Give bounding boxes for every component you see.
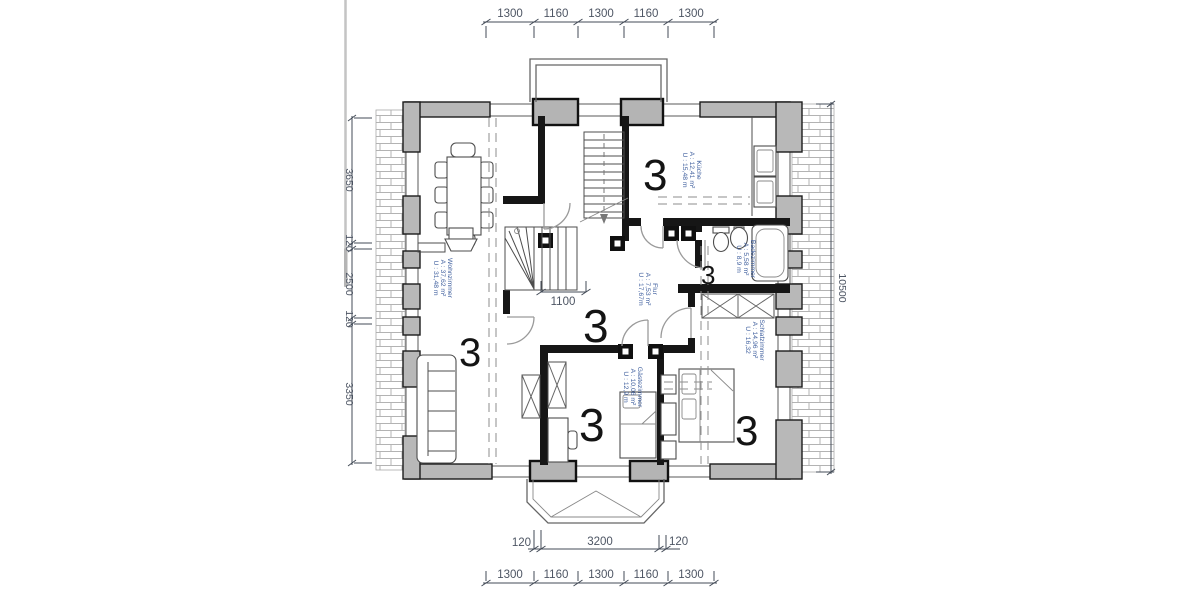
- dim-label: 1160: [544, 569, 569, 581]
- wardrobe-wohnzimmer: [522, 375, 540, 418]
- balcony-outline: [530, 59, 667, 102]
- room-perimeter: U : 17,67m: [637, 272, 644, 306]
- column: [538, 233, 553, 248]
- column: [618, 344, 633, 359]
- room-area: A : 5,58 m²: [742, 243, 749, 277]
- room-name: Wohnzimmer: [446, 258, 453, 299]
- dim-label: 1300: [588, 8, 614, 20]
- wardrobe-schlafzimmer: [702, 294, 774, 318]
- dim-label: 120: [512, 537, 531, 549]
- room-area: A : 10,06 m²: [629, 369, 636, 406]
- dim-label: 1300: [678, 569, 704, 581]
- room-area: A : 12,41 m²: [688, 152, 695, 189]
- dimension-top: 1300 1160 1300 1160 1300: [482, 8, 719, 38]
- room-label-gaestezimmer: Gästezimmer A : 10,06 m² U : 12,9 m: [622, 367, 643, 408]
- room-marker: 3: [643, 151, 667, 200]
- room-marker: 3: [735, 407, 758, 454]
- room-name: Schlafzimmer: [758, 319, 765, 361]
- dimension-bottom-upper: 120 3200 120: [512, 530, 688, 552]
- room-name: Badezimmer: [749, 240, 756, 279]
- sofa: [417, 355, 456, 463]
- bay-window: [527, 479, 664, 523]
- room-label-flur: Flur A : 7,53 m² U : 17,67m: [637, 272, 658, 306]
- dim-label: 1160: [634, 569, 659, 581]
- column: [664, 226, 679, 241]
- dim-label: 10500: [836, 273, 848, 302]
- column: [610, 236, 625, 251]
- room-name: Gästezimmer: [636, 367, 643, 408]
- dim-label: 120: [343, 234, 355, 252]
- dim-label: 1100: [551, 296, 576, 308]
- kitchen-counter: [752, 117, 776, 216]
- door-wohnzimmer: [507, 317, 534, 344]
- room-label-kueche: Küche A : 12,41 m² U : 15,48 m: [681, 152, 702, 189]
- dim-label: 3200: [587, 536, 613, 548]
- dim-label: 1160: [544, 8, 569, 20]
- dim-label: 120: [669, 536, 688, 548]
- dim-label: 1300: [497, 569, 523, 581]
- door-kitchen: [641, 226, 663, 248]
- room-label-schlafzimmer: Schlafzimmer A : 14,96 m² U : 16,32: [744, 319, 765, 361]
- column: [648, 344, 663, 359]
- room-marker: 3: [579, 399, 605, 451]
- desk: [548, 418, 577, 462]
- room-perimeter: U : 31,48 m: [432, 260, 439, 295]
- room-name: Küche: [695, 160, 702, 179]
- floorplan-canvas: 1300 1160 1300 1160 1300 120 3200 120 13…: [0, 0, 1200, 600]
- dim-label: 3350: [343, 382, 355, 406]
- floorplan-drawing: 1300 1160 1300 1160 1300 120 3200 120 13…: [0, 0, 1200, 600]
- room-area: A : 37,62 m²: [439, 260, 446, 297]
- room-marker: 3: [701, 260, 715, 290]
- door-gaestezimmer: [622, 320, 648, 346]
- room-perimeter: U : 8,9 m: [735, 245, 742, 273]
- room-area: A : 7,53 m²: [644, 273, 651, 307]
- room-perimeter: U : 16,32: [744, 326, 751, 354]
- bathtub: [752, 225, 788, 281]
- dim-label: 1160: [634, 8, 659, 20]
- dim-label: 120: [343, 310, 355, 328]
- dimension-bottom-lower: 1300 1160 1300 1160 1300: [482, 569, 719, 586]
- dimension-left: 3650 120 2500 120 3350: [343, 115, 372, 466]
- wardrobe-gaestezimmer: [548, 362, 566, 408]
- room-label-badezimmer: Badezimmer A : 5,58 m² U : 8,9 m: [735, 240, 756, 279]
- room-label-wohnzimmer: Wohnzimmer A : 37,62 m² U : 31,48 m: [432, 258, 453, 299]
- door-schlafzimmer: [661, 308, 691, 338]
- dim-label: 1300: [497, 8, 523, 20]
- room-marker: 3: [583, 300, 609, 352]
- room-name: Flur: [651, 283, 658, 295]
- room-perimeter: U : 15,48 m: [681, 152, 688, 187]
- staircase: [505, 132, 628, 290]
- door-stair-hall: [544, 203, 570, 229]
- dim-label: 3650: [343, 168, 355, 192]
- dim-label: 1300: [588, 569, 614, 581]
- dim-label: 2500: [343, 272, 355, 296]
- room-perimeter: U : 12,9 m: [622, 371, 629, 403]
- room-area: A : 14,96 m²: [751, 322, 758, 359]
- straight-flight: [580, 132, 628, 224]
- dim-label: 1300: [678, 8, 704, 20]
- wall-pier: [530, 461, 576, 481]
- column: [681, 226, 696, 241]
- roof-hatch-left: [376, 110, 405, 470]
- room-marker: 3: [459, 331, 481, 375]
- toilet: [713, 227, 729, 252]
